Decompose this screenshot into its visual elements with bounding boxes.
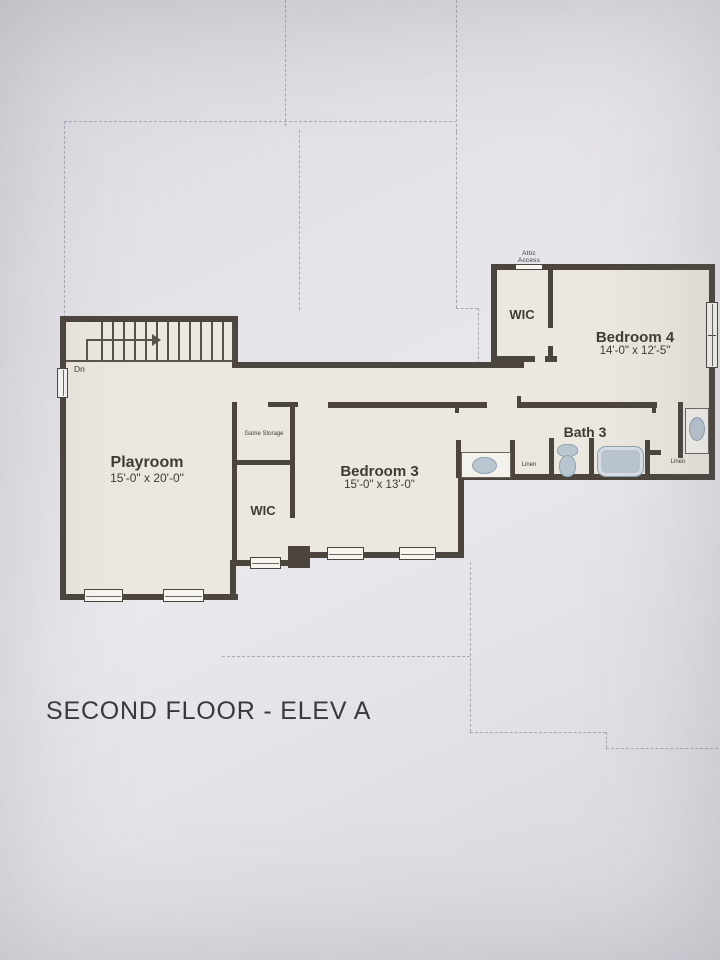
wall <box>548 346 553 362</box>
stair-direction-arrow <box>86 339 88 361</box>
window <box>399 547 436 560</box>
wall <box>709 264 715 480</box>
toilet-bowl <box>559 455 576 477</box>
second-floor-plan: Dn <box>0 0 720 960</box>
wall <box>517 402 657 408</box>
door-jamb <box>455 406 459 413</box>
wall <box>678 402 683 458</box>
stair-treads <box>101 322 234 360</box>
room-label-game-storage: Game Storage <box>238 431 290 438</box>
room-dims-bedroom4: 14'-0" x 12'-5" <box>565 345 705 358</box>
dashed-outline-segment <box>64 121 457 122</box>
dashed-outline-segment <box>285 0 286 126</box>
room-label-bedroom3: Bedroom 3 <box>312 463 447 480</box>
wall <box>328 402 487 408</box>
sink <box>472 457 497 474</box>
dashed-outline-segment <box>64 121 65 318</box>
wall <box>230 560 236 600</box>
wall <box>232 460 295 465</box>
floor-plan-photo: Dn <box>0 0 720 960</box>
wall <box>548 264 553 328</box>
dashed-outline-segment <box>606 748 718 749</box>
dashed-outline-segment <box>456 0 457 132</box>
room-label-bath3: Bath 3 <box>550 424 620 440</box>
dashed-outline-segment <box>456 308 478 309</box>
room-label-wic-lower: WIC <box>238 504 288 519</box>
attic-access-line1: Attic <box>505 250 553 257</box>
wall <box>458 474 464 558</box>
wall <box>645 440 650 478</box>
dashed-outline-segment <box>456 132 457 308</box>
window <box>250 557 281 569</box>
sheet-title: SECOND FLOOR - ELEV A <box>46 697 371 726</box>
dashed-outline-segment <box>606 732 607 748</box>
dashed-outline-segment <box>478 308 479 364</box>
stair-arrow-head <box>152 334 161 346</box>
room-label-bedroom4: Bedroom 4 <box>565 329 705 346</box>
dashed-outline-segment <box>470 732 606 733</box>
stair-edge-line <box>66 360 232 362</box>
stairs-down-label: Dn <box>74 365 85 375</box>
dashed-outline-segment <box>222 656 470 657</box>
window <box>57 368 68 398</box>
wall <box>232 402 237 565</box>
door-jamb <box>517 396 521 403</box>
wall <box>645 450 661 455</box>
door-jamb <box>652 406 656 413</box>
wall <box>491 264 497 362</box>
linen-label-left: Linen <box>515 462 543 469</box>
window <box>327 547 364 560</box>
room-label-wic-upper: WIC <box>498 308 546 323</box>
wall <box>543 264 715 270</box>
window <box>84 589 123 602</box>
room-dims-playroom: 15'-0" x 20'-0" <box>82 472 212 486</box>
room-label-playroom: Playroom <box>82 454 212 472</box>
dashed-outline-segment <box>470 562 471 732</box>
wall <box>232 362 524 368</box>
dashed-outline-segment <box>299 130 300 310</box>
wall <box>491 356 535 362</box>
window <box>706 302 718 368</box>
stair-direction-arrow <box>86 339 154 341</box>
wall <box>60 316 66 600</box>
wall <box>589 438 594 478</box>
sink <box>689 417 705 441</box>
wall <box>549 438 554 478</box>
attic-access-line2: Access <box>505 257 553 264</box>
window <box>163 589 204 602</box>
linen-label-right: Linen <box>664 459 692 466</box>
floor-area-bedroom3 <box>294 364 464 556</box>
bathtub <box>597 446 644 477</box>
attic-access-label: Attic Access <box>505 250 553 265</box>
room-dims-bedroom3: 15'-0" x 13'-0" <box>312 479 447 492</box>
